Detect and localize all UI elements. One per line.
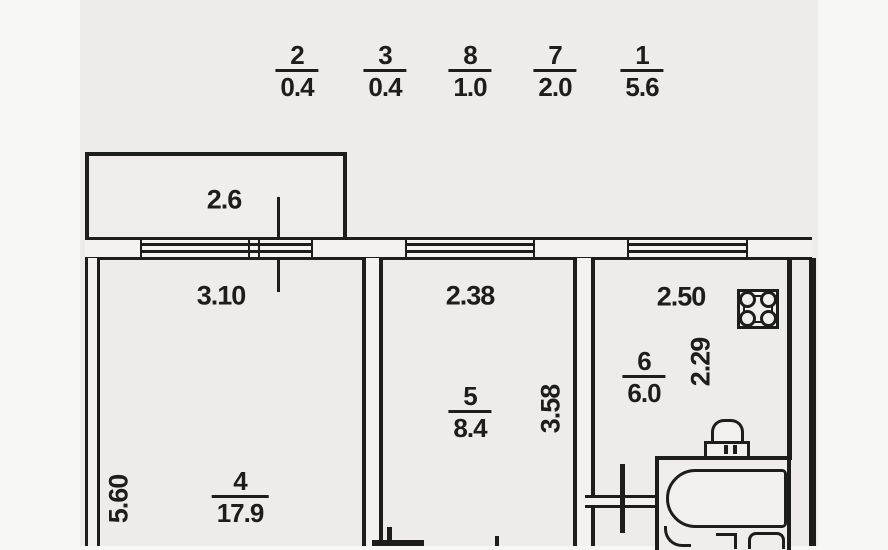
stove-burner [760, 291, 777, 308]
room6-area: 6.0 [622, 375, 665, 407]
stove-burner [739, 291, 756, 308]
room6-depth-dim: 2.29 [686, 338, 717, 387]
bathtub-icon [666, 469, 787, 528]
legend-room-number: 7 [533, 42, 576, 69]
glazing-line [142, 250, 311, 253]
stove-icon [737, 289, 779, 329]
wall-right-inner [787, 258, 792, 460]
legend-fraction-8: 8 1.0 [448, 42, 491, 101]
room5-number: 5 [448, 383, 491, 410]
window-room6 [627, 240, 748, 257]
wall-left-exterior [85, 258, 100, 546]
window-mullion [248, 240, 250, 257]
floor-plan: 2 0.4 3 0.4 8 1.0 7 2.0 1 5.6 2.6 [0, 0, 888, 546]
balcony-width-dim: 2.6 [207, 185, 242, 216]
window-band [85, 237, 812, 260]
legend-fraction-1: 1 5.6 [620, 42, 663, 101]
legend-room-number: 2 [275, 42, 318, 69]
room4-label: 4 17.9 [212, 468, 269, 527]
room5-label: 5 8.4 [448, 383, 491, 442]
room5-area: 8.4 [448, 410, 491, 442]
toilet-tank-mark [733, 445, 737, 454]
legend-room-area: 1.0 [448, 69, 491, 101]
door-leaf-partial [495, 536, 499, 546]
room4-area: 17.9 [212, 495, 269, 527]
legend-room-number: 1 [620, 42, 663, 69]
room4-depth-dim: 5.60 [104, 475, 135, 524]
legend-room-area: 0.4 [275, 69, 318, 101]
stove-burner [739, 310, 756, 327]
fixture-partial [748, 532, 785, 549]
bathroom-door-leaf [620, 464, 625, 533]
glazing-line [407, 243, 533, 246]
toilet-tank-mark [724, 445, 728, 454]
room6-label: 6 6.0 [622, 348, 665, 407]
room5-width-dim: 2.38 [446, 281, 495, 312]
window-mullion [258, 240, 260, 257]
stove-burner [760, 310, 777, 327]
glazing-line [629, 243, 746, 246]
room5-depth-dim: 3.58 [536, 385, 567, 434]
glazing-line [407, 250, 533, 253]
room6-number: 6 [622, 348, 665, 375]
legend-fraction-7: 7 2.0 [533, 42, 576, 101]
room6-width-dim: 2.50 [657, 282, 706, 313]
legend-room-number: 3 [363, 42, 406, 69]
window-room5 [405, 240, 535, 257]
window-room4 [140, 240, 313, 257]
legend-room-number: 8 [448, 42, 491, 69]
legend-fraction-3: 3 0.4 [363, 42, 406, 101]
legend-fraction-2: 2 0.4 [275, 42, 318, 101]
glazing-line [142, 243, 311, 246]
fixture-partial [716, 533, 737, 549]
wall-right-exterior [809, 258, 816, 546]
room4-number: 4 [212, 468, 269, 495]
door-leaf-partial [387, 527, 392, 546]
legend-room-area: 5.6 [620, 69, 663, 101]
glazing-line [629, 250, 746, 253]
legend-room-area: 0.4 [363, 69, 406, 101]
wall-room4-room5 [362, 258, 383, 546]
room4-width-dim: 3.10 [197, 281, 246, 312]
legend-room-area: 2.0 [533, 69, 576, 101]
wall-bottom-partial [372, 540, 424, 546]
